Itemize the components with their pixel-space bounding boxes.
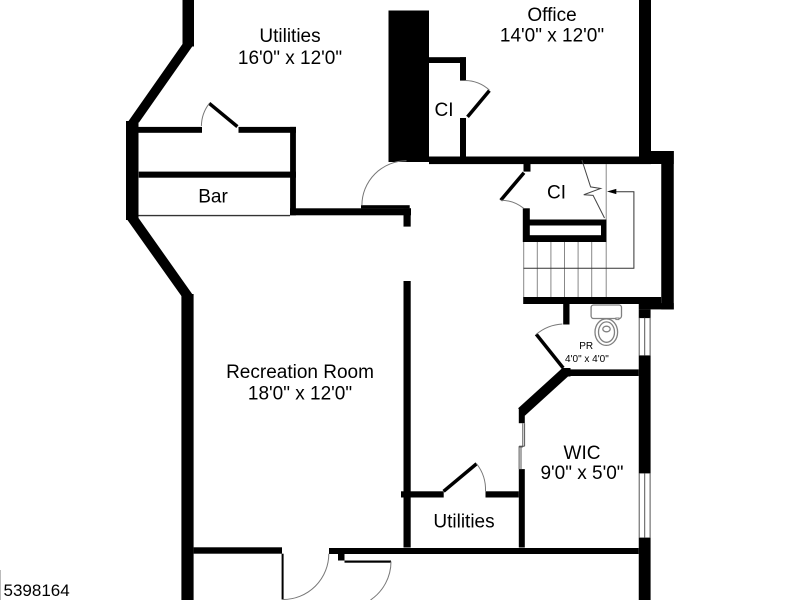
svg-text:PR: PR <box>579 341 593 352</box>
svg-text:9'0" x 5'0": 9'0" x 5'0" <box>540 463 623 484</box>
svg-text:CI: CI <box>435 100 454 121</box>
svg-text:14'0" x 12'0": 14'0" x 12'0" <box>500 26 604 47</box>
svg-text:WIC: WIC <box>564 443 601 464</box>
svg-text:CI: CI <box>547 183 566 204</box>
svg-text:16'0" x 12'0": 16'0" x 12'0" <box>238 48 342 69</box>
svg-text:Office: Office <box>527 5 576 26</box>
svg-text:4'0" x 4'0": 4'0" x 4'0" <box>565 354 609 365</box>
svg-text:Recreation Room: Recreation Room <box>226 362 374 383</box>
svg-text:18'0" x 12'0": 18'0" x 12'0" <box>248 384 352 405</box>
svg-text:Utilities: Utilities <box>259 26 320 47</box>
svg-text:5398164: 5398164 <box>4 581 70 600</box>
svg-text:Utilities: Utilities <box>433 512 494 533</box>
svg-text:Bar: Bar <box>198 187 228 208</box>
